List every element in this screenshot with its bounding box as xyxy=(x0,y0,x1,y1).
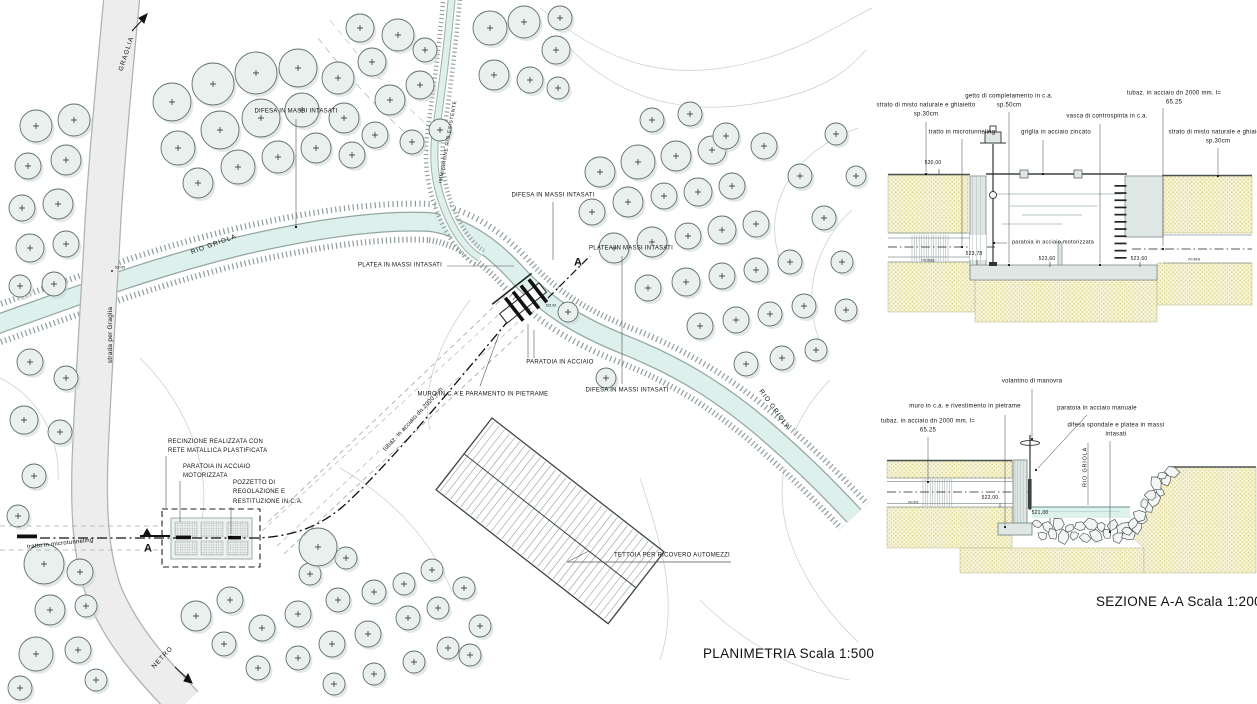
sec-top-strato-dx: strato di misto naturale e ghiaietto sp.… xyxy=(1168,129,1257,148)
annotation-paratoia-acciaio: PARATOIA IN ACCIAIO xyxy=(526,358,593,367)
section-bottom-drawing xyxy=(887,389,1256,573)
section-marker-a-bottom: A xyxy=(144,540,152,557)
sec-bot-difesa: difesa spondale e platea in massi intasa… xyxy=(1057,422,1175,441)
blueprint-canvas: GRAGLIA strada per Graglia NETRO RIO GRI… xyxy=(0,0,1257,704)
drawing-svg xyxy=(0,0,1257,704)
sec-top-vasca: vasca di controspinta in c.a. xyxy=(1066,112,1147,121)
sec-bot-muro: muro in c.a. e rivestimento in pietrame xyxy=(906,402,1024,411)
annotation-platea-2: PLATEA IN MASSI INTASATI xyxy=(589,244,673,253)
annotation-difesa-3: DIFESA IN MASSI INTASATI xyxy=(585,386,668,395)
plan-title: PLANIMETRIA Scala 1:500 xyxy=(703,644,874,665)
sec-top-slope-sx: i=0.0693 xyxy=(921,258,934,263)
sec-top-griglia: griglia in acciaio zincato xyxy=(1021,128,1091,137)
sec-bot-rio-griola: RIO GRIOLA xyxy=(1082,447,1091,487)
sec-top-tubaz: tubaz. in acciaio dn 2000 mm. l= 65.25 xyxy=(1124,90,1224,109)
sec-bot-elev-522: 522,00 xyxy=(982,495,999,503)
sec-bot-volantino: volantino di manovra xyxy=(1002,377,1062,386)
annotation-platea-1: PLATEA IN MASSI INTASATI xyxy=(358,261,442,270)
sec-top-elev-530: 530,00 xyxy=(925,160,942,168)
section-title: SEZIONE A-A Scala 1:200 xyxy=(1096,592,1257,613)
plan-drawing xyxy=(0,0,872,704)
elevation-road: 530.09 xyxy=(115,265,125,270)
sec-top-elev-52360-b: 523,60 xyxy=(1131,256,1148,264)
sec-top-slope-dx: i=0.49% xyxy=(1188,257,1200,262)
sec-top-elev-52378: 523,78 xyxy=(966,251,983,259)
annotation-recinzione: RECINZIONE REALIZZATA CON RETE MATALLICA… xyxy=(168,438,280,457)
section-marker-a-top: A xyxy=(574,254,582,271)
road-label-strada-per-graglia: strada per Graglia xyxy=(106,307,116,364)
annotation-difesa-1: DIFESA IN MASSI INTASATI xyxy=(254,107,337,116)
sec-top-tratto: tratto in microtunneling xyxy=(929,128,996,137)
annotation-difesa-2: DIFESA IN MASSI INTASATI xyxy=(511,191,594,200)
sec-bot-slope: i=0.5% xyxy=(908,500,918,505)
elevation-weir: 521.00 xyxy=(546,303,556,308)
annotation-tettoia: TETTOIA PER RICOVERO AUTOMEZZI xyxy=(614,551,730,560)
sec-top-paratoia: paratoia in acciaio motorizzata xyxy=(1012,239,1094,248)
sec-bot-paratoia-manuale: paratoia in acciaio manuale xyxy=(1057,404,1137,413)
sec-top-elev-52360-a: 523,60 xyxy=(1039,256,1056,264)
sec-bot-elev-521: 521,00 xyxy=(1032,510,1049,518)
annotation-pozzetto: POZZETTO DI REGOLAZIONE E RESTITUZIONE I… xyxy=(233,479,313,507)
sec-bot-tubaz: tubaz. in acciaio dn 2000 mm. l= 65.25 xyxy=(878,418,978,437)
sec-top-getto: getto di completamento in c.a. sp.50cm xyxy=(955,93,1063,112)
